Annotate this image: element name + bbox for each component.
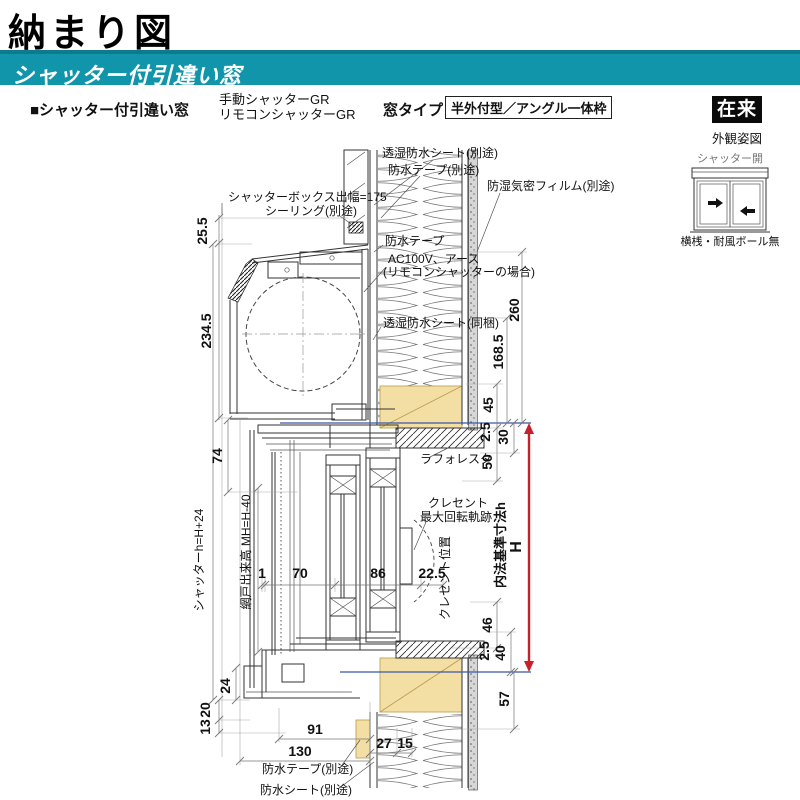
dim-45: 45 (480, 397, 496, 413)
label-crescent-1: クレセント (428, 496, 488, 510)
label-inner-H: H (508, 541, 525, 553)
label-sheet-mid: 透湿防水シート(同梱) (383, 315, 499, 330)
dim-86: 86 (370, 565, 386, 581)
label-screen-formula: 網戸出来高 MH=H-40 (238, 494, 253, 609)
dim-15: 15 (397, 735, 413, 751)
label-shutter-formula: シャッターh=H+24 (192, 508, 206, 611)
insect-screen (272, 452, 281, 655)
dim-13: 13 (197, 719, 213, 735)
label-tape-bottom: 防水テープ(別途) (262, 761, 353, 776)
inner-sash (366, 448, 400, 642)
dim-70: 70 (292, 565, 308, 581)
dim-57: 57 (496, 691, 512, 707)
dim-25-5: 25.5 (194, 217, 210, 244)
dim-2-5-b: 2.5 (476, 641, 492, 661)
slide-arrow-left-icon (740, 206, 755, 216)
dim-50: 50 (479, 454, 495, 470)
dim-234-5: 234.5 (198, 313, 214, 348)
dim-40: 40 (492, 645, 508, 661)
label-inner-std: 内法基準寸法h (493, 502, 508, 588)
label-sheet-top: 透湿防水シート(別途) (382, 145, 498, 160)
crescent-lock (400, 520, 434, 602)
label-tape-top: 防水テープ(別途) (388, 162, 479, 177)
label-sheet-bottom: 防水シート(別途) (260, 782, 352, 797)
dim-130: 130 (288, 743, 312, 759)
label-power-2: (リモコンシャッターの場合) (383, 264, 535, 279)
dim-168-5: 168.5 (490, 334, 506, 369)
installation-detail-drawing: 透湿防水シート(別途) 防水テープ(別途) 防湿気密フィルム(別途) シャッター… (0, 0, 800, 800)
appearance-state-label: シャッター開 (697, 152, 763, 165)
catalog-page: 納まり図 シャッター付引違い窓 ■シャッター付引違い窓 手動シャッターGR リモ… (0, 0, 800, 800)
outer-sash (326, 455, 360, 650)
label-sealing: シーリング(別途) (265, 203, 357, 218)
label-power-1: AC100V、アース (388, 252, 479, 266)
dim-74: 74 (209, 448, 225, 464)
dim-260: 260 (506, 298, 522, 322)
appearance-diagram: シャッター開 横桟・耐風ボール無 (681, 152, 780, 248)
appearance-note: 横桟・耐風ボール無 (681, 234, 780, 248)
dim-1: 1 (258, 565, 266, 581)
dim-30: 30 (495, 429, 511, 445)
dim-2-5-a: 2.5 (477, 422, 493, 442)
dim-22-5: 22.5 (418, 565, 445, 581)
dim-46: 46 (479, 617, 495, 633)
label-crescent-2: 最大回転軌跡 (420, 509, 492, 524)
slide-arrow-right-icon (708, 198, 723, 208)
label-film: 防湿気密フィルム(別途) (487, 178, 615, 193)
dim-27: 27 (376, 735, 392, 751)
dim-20: 20 (197, 702, 213, 718)
dim-91: 91 (307, 721, 323, 737)
label-tape-mid: 防水テープ (385, 233, 444, 248)
dim-24: 24 (217, 678, 233, 694)
label-box-width: シャッターボックス出幅=175 (228, 189, 387, 204)
